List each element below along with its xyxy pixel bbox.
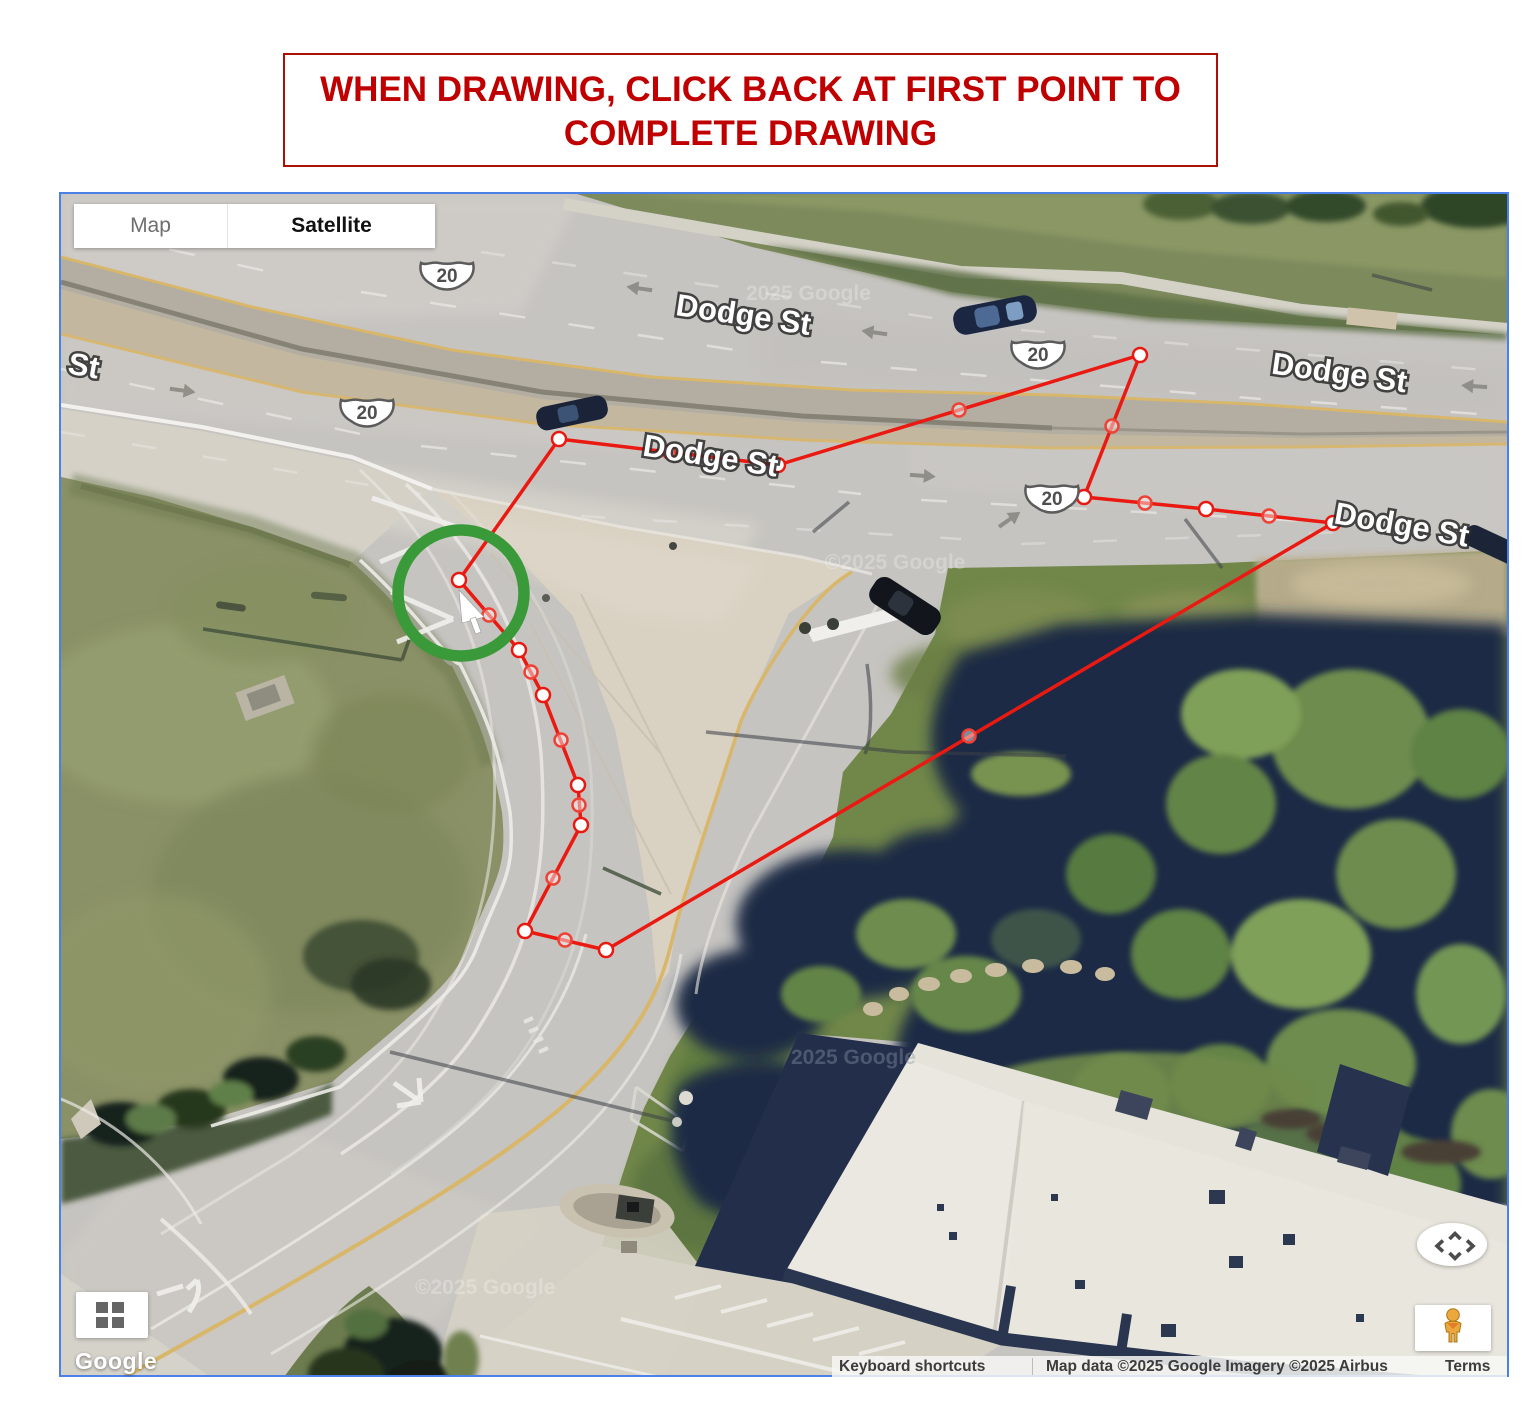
svg-text:2025 Google: 2025 Google [791, 1046, 916, 1069]
svg-text:20: 20 [436, 266, 457, 287]
svg-text:20: 20 [356, 403, 377, 424]
svg-text:20: 20 [1041, 489, 1062, 510]
svg-text:©2025 Google: ©2025 Google [415, 1276, 555, 1299]
svg-text:St: St [66, 346, 103, 386]
svg-text:©2025 Google: ©2025 Google [825, 551, 965, 574]
svg-text:20: 20 [1027, 345, 1048, 366]
